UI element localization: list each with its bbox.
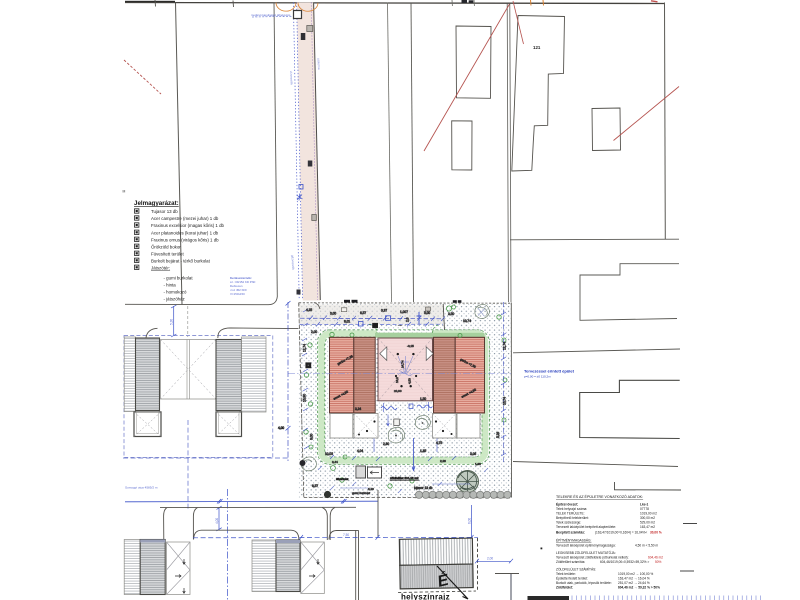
svg-text:Beépíthető telekterület:: Beépíthető telekterület: [556,516,589,520]
svg-text:helyszínrajz: helyszínrajz [401,593,450,600]
svg-text:2,00: 2,00 [311,330,317,334]
svg-text:J.sz 452 KFF: J.sz 452 KFF [230,288,247,292]
svg-text:4,04: 4,04 [357,449,363,453]
svg-text:5,30: 5,30 [170,319,174,325]
svg-text:3,50: 3,50 [448,312,454,316]
svg-text:Telek helyrajzi száma:: Telek helyrajzi száma: [556,507,587,511]
svg-text:1019,00 m2 → 100,00 %: 1019,00 m2 → 100,00 % [618,572,653,576]
svg-text:gázvezeték: gázvezeték [291,255,296,271]
svg-text:tujasor 13 db: tujasor 13 db [414,486,433,490]
svg-text:Építési övezet:: Építési övezet: [556,502,578,507]
svg-text:- gumi burkolat: - gumi burkolat [164,275,194,280]
svg-text:8,01: 8,01 [344,320,350,324]
svg-text:604,46 m2: 604,46 m2 [648,556,663,560]
svg-text:p=0,00 = ±0 110,2m: p=0,00 = ±0 110,2m [524,375,551,379]
svg-text:±0,00: ±0,00 [394,389,402,393]
svg-text:Tervezéssel érintett épület: Tervezéssel érintett épület [524,369,575,374]
svg-text:Tujasor 13 db: Tujasor 13 db [151,209,178,214]
svg-text:2,90: 2,90 [383,442,389,446]
svg-text:gumi burkolat: gumi burkolat [352,491,370,495]
svg-text:1,50: 1,50 [420,397,426,401]
svg-text:15,90: 15,90 [303,394,307,402]
svg-text:Acer campestre (mezei juhar) 1: Acer campestre (mezei juhar) 1 db [151,216,219,221]
svg-text:Játszótér:: Játszótér: [151,265,170,270]
svg-text:3,06: 3,06 [470,452,476,456]
svg-text:4,50 m < 5,50 m: 4,50 m < 5,50 m [635,544,658,548]
svg-text:Fraxinus ornus (virágos kőris): Fraxinus ornus (virágos kőris) 1 db [151,237,219,242]
svg-text:ÉPÍTMÉNYMAGASSÁG:: ÉPÍTMÉNYMAGASSÁG: [556,538,592,543]
svg-text:sz.: 09/152 KD PhD: sz.: 09/152 KD PhD [230,280,255,284]
svg-text:TELEKRE ÉS AZ ÉPÜLETRE VONATKO: TELEKRE ÉS AZ ÉPÜLETRE VONATKOZÓ ADATOK: [556,494,643,499]
svg-text:6,57: 6,57 [360,311,366,315]
svg-text:07778: 07778 [640,507,649,511]
svg-text:3,24: 3,24 [355,407,361,411]
svg-text:121: 121 [533,45,541,50]
svg-text:5,00: 5,00 [424,311,430,315]
svg-text:Tervezett lakóépület építménym: Tervezett lakóépület építménymagassága: [556,544,616,548]
svg-text:50%: 50% [655,560,662,564]
svg-text:10,05: 10,05 [325,452,333,456]
svg-text:TELEK TERÜLETE:: TELEK TERÜLETE: [556,512,585,516]
svg-text:3,44: 3,44 [332,460,338,464]
svg-text:Burkolt bejárat - térkő burkol: Burkolt bejárat - térkő burkolat [151,258,211,263]
svg-text:Somogyi utca 4585/2 m: Somogyi utca 4585/2 m [125,486,158,490]
svg-text:vízvezeték: vízvezeték [289,71,294,86]
svg-text:30,00 %: 30,00 % [650,531,662,535]
svg-text:Burkolt utak, parkolók, lépcső: Burkolt utak, parkolók, lépcsők területe… [556,581,612,585]
svg-text:csatorna: csatorna [317,58,322,70]
svg-text:1,007: 1,007 [400,310,408,314]
svg-text:1,35: 1,35 [420,449,426,453]
svg-text:7,50: 7,50 [343,533,349,537]
svg-text:(163,47/1019,00=0,1604) = 16,0: (163,47/1019,00=0,1604) = 16,04%< [595,531,647,535]
svg-text:Kertészmérnök:: Kertészmérnök: [230,276,252,280]
svg-text:15,74: 15,74 [503,397,507,405]
svg-text:Debrecen: Debrecen [230,284,243,288]
svg-text:- homokozó: - homokozó [164,289,187,294]
svg-text:Zöldfelület számítás:: Zöldfelület számítás: [556,560,585,564]
svg-text:16,2: 16,2 [395,377,399,383]
svg-text:3,00: 3,00 [330,312,336,316]
svg-text:útburkolat: útburkolat [336,477,349,481]
svg-text:Füvesített terület: Füvesített terület [151,251,184,256]
svg-text:- játszóház: - játszóház [164,296,185,301]
svg-text:V=150x150: V=150x150 [230,292,245,296]
svg-text:251,07 m2 → 24,64 %: 251,07 m2 → 24,64 % [618,581,650,585]
svg-text:2,26: 2,26 [440,459,446,463]
svg-text:604,46 m2 → 59,32 % > 50%: 604,46 m2 → 59,32 % > 50% [618,586,660,590]
svg-text:1,98: 1,98 [475,462,481,466]
svg-text:4,00: 4,00 [278,426,284,430]
svg-text:Beépített számítás:: Beépített számítás: [556,531,585,535]
svg-text:8,57: 8,57 [312,484,318,488]
svg-text:Lke-1: Lke-1 [640,503,649,507]
svg-text:Épülettel fedett terület:: Épülettel fedett terület: [556,576,588,581]
svg-text:LEGKISEBB ZÖLDFELÜLET MUTATÓJA: LEGKISEBB ZÖLDFELÜLET MUTATÓJA: [556,550,616,555]
svg-text:Telek területe:: Telek területe: [556,572,576,576]
svg-text:Jelmagyarázat:: Jelmagyarázat: [134,200,179,207]
svg-text:Tervezett lakóépület beépített: Tervezett lakóépület beépített alapterül… [556,525,616,529]
svg-text:4,00: 4,00 [215,518,219,524]
svg-text:604,46/1019,00=0,5932=59,32% >: 604,46/1019,00=0,5932=59,32% > [600,560,649,564]
svg-text:M: M [123,190,126,194]
svg-text:ZÖLDFELÜLET SZÁMÍTÁS:: ZÖLDFELÜLET SZÁMÍTÁS: [556,568,596,572]
svg-text:zöldfelület 604,46 m2: zöldfelület 604,46 m2 [390,476,419,480]
svg-text:1019,00 m2: 1019,00 m2 [640,512,657,516]
svg-text:12,74: 12,74 [303,344,307,352]
svg-text:163,47 m2: 163,47 m2 [640,525,655,529]
svg-text:Fraxinus excelsior (magas kőri: Fraxinus excelsior (magas kőris) 1 db [151,223,225,228]
svg-text:- hinta: - hinta [164,282,177,287]
svg-text:Tervezett lakóépület zöldfelül: Tervezett lakóépület zöldfelülete (útbur… [556,556,629,560]
svg-text:4,50: 4,50 [408,378,412,384]
svg-text:12,74: 12,74 [503,342,507,350]
svg-text:5,26: 5,26 [496,432,500,438]
svg-text:2,0: 2,0 [406,317,410,322]
svg-text:163,47 m2 → 16,04 %: 163,47 m2 → 16,04 % [618,577,650,581]
svg-text:Telek szélessége:: Telek szélessége: [556,521,581,525]
svg-text:10,74: 10,74 [463,319,471,323]
svg-text:4,75: 4,75 [436,441,442,445]
svg-text:meglévő kapubejáró áthelyezés: meglévő kapubejáró áthelyezés [251,13,291,17]
svg-text:-0,15: -0,15 [407,344,414,348]
svg-text:6,00: 6,00 [310,434,314,440]
svg-text:Örökzöld bokor: Örökzöld bokor [151,244,181,249]
svg-text:Zöldfelület:: Zöldfelület: [556,586,573,590]
svg-text:6,00: 6,00 [467,518,471,524]
svg-text:6,20: 6,20 [368,487,374,491]
svg-text:0,37: 0,37 [381,309,387,313]
svg-text:2,00: 2,00 [487,557,493,561]
svg-text:4,25: 4,25 [306,308,312,312]
svg-text:14,74: 14,74 [401,360,405,368]
svg-text:Acer platanoides (korai juhar): Acer platanoides (korai juhar) 1 db [151,230,219,235]
svg-text:300,00 m2: 300,00 m2 [640,516,655,520]
svg-text:529,00 m2: 529,00 m2 [640,521,655,525]
